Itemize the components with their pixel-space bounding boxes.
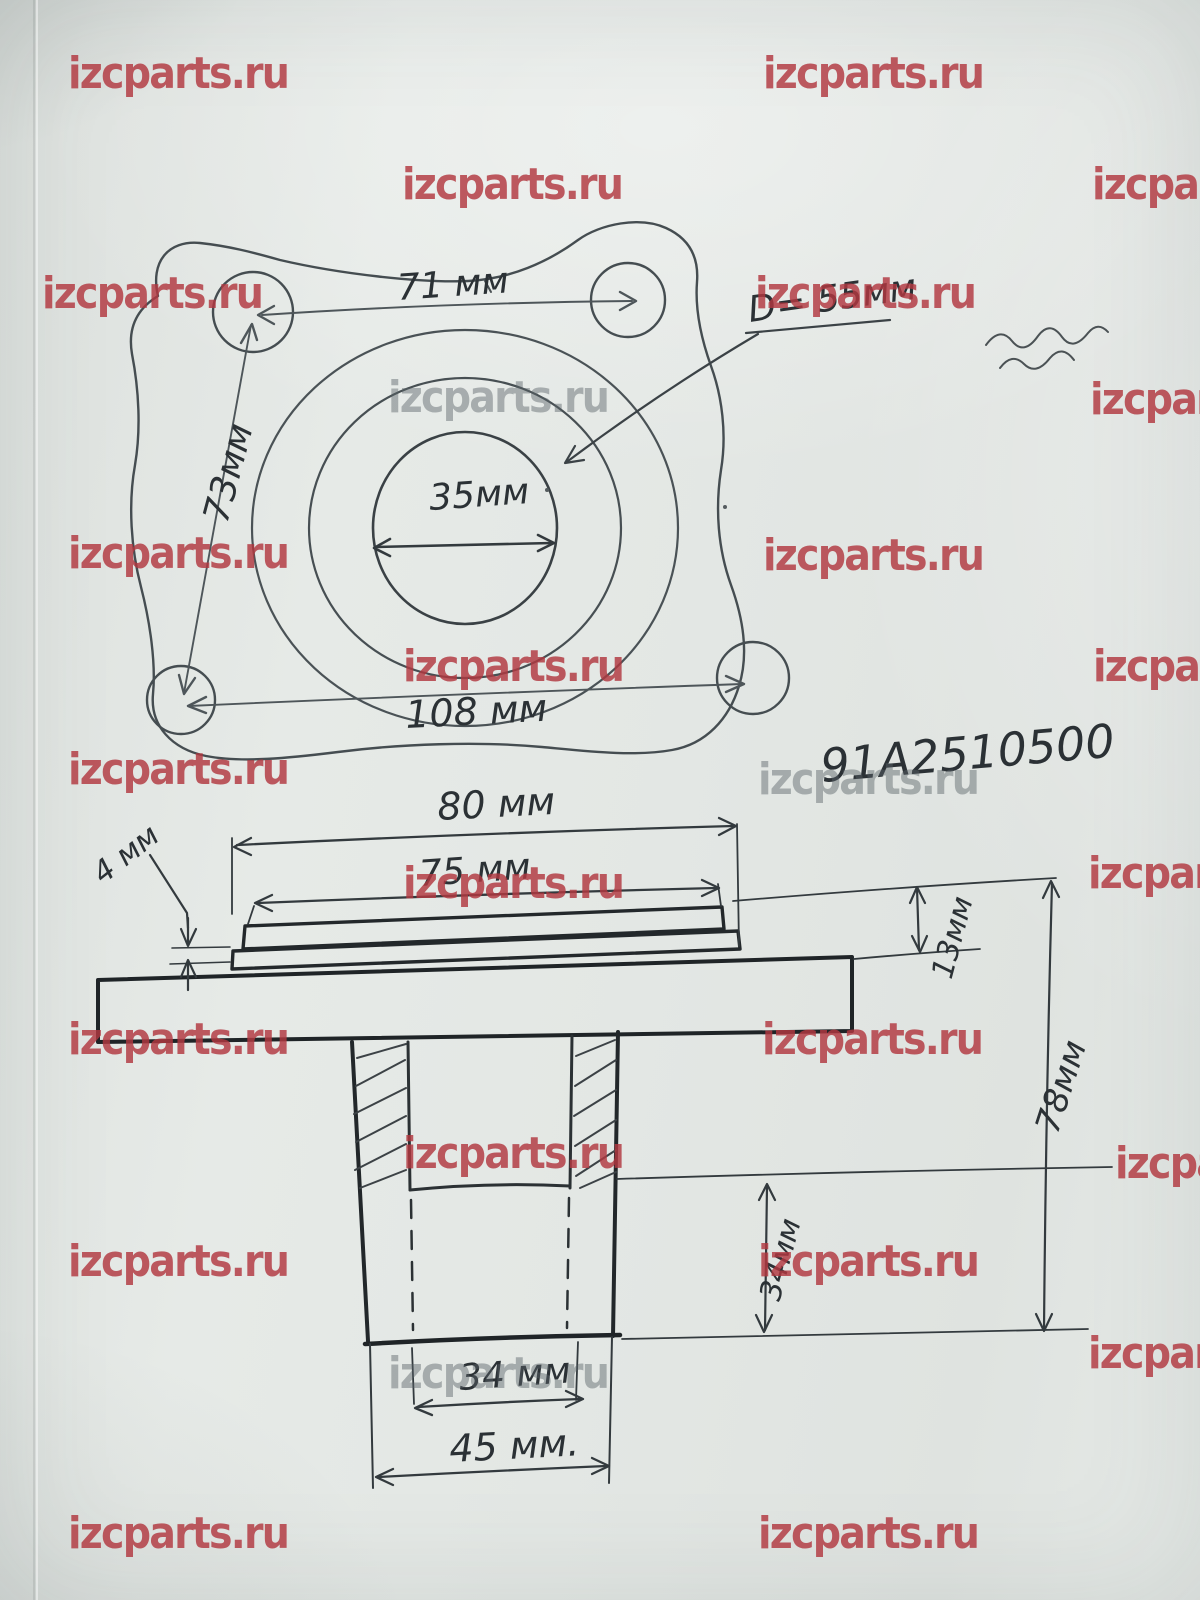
label-dim-4: 4 мм (86, 818, 166, 891)
dim-d55-leader (565, 320, 890, 463)
hatching-right (574, 1040, 616, 1188)
label-dim-45: 45 мм. (448, 1420, 580, 1471)
label-dim-80: 80 мм (436, 779, 556, 829)
label-dim-13: 13мм (925, 893, 980, 983)
flange-bore-circle (373, 432, 557, 624)
label-dim-d55: D= 55мм (746, 267, 920, 331)
bolt-hole-top-right (591, 263, 665, 337)
label-dim-34-bore: 34 мм (458, 1350, 572, 1399)
label-dim-75: 75 мм (418, 846, 532, 895)
technical-drawing: 71 мм 73мм 108 мм 35мм D= 55мм 91А251050… (0, 0, 1200, 1600)
label-dim-34-depth: 34мм (753, 1215, 808, 1305)
label-dim-35: 35мм (428, 471, 531, 519)
dim-34-depth (617, 1167, 1112, 1332)
side-section-view: 80 мм 75 мм 4 мм 13мм 78мм 34мм 34 мм 45… (86, 779, 1112, 1488)
hub-cylinder (352, 1032, 620, 1344)
dim-13 (733, 878, 1056, 959)
hatching-left (354, 1044, 406, 1188)
label-dim-71: 71 мм (396, 260, 510, 309)
bolt-hole-bottom-left (147, 666, 215, 734)
label-dim-78: 78мм (1028, 1035, 1095, 1137)
part-number: 91А2510500 (818, 713, 1116, 792)
flange-middle-circle (309, 378, 621, 678)
dim-4 (150, 855, 230, 990)
label-dim-108: 108 мм (404, 686, 548, 737)
dim-35 (374, 535, 554, 556)
base-plate (98, 957, 852, 1042)
flange-outer-circle (252, 330, 678, 726)
scanned-sketch-page: 71 мм 73мм 108 мм 35мм D= 55мм 91А251050… (0, 0, 1200, 1600)
bolt-hole-top-left (213, 272, 293, 352)
top-plates (232, 907, 740, 969)
flange-top-view: 71 мм 73мм 108 мм 35мм D= 55мм (131, 222, 1108, 759)
